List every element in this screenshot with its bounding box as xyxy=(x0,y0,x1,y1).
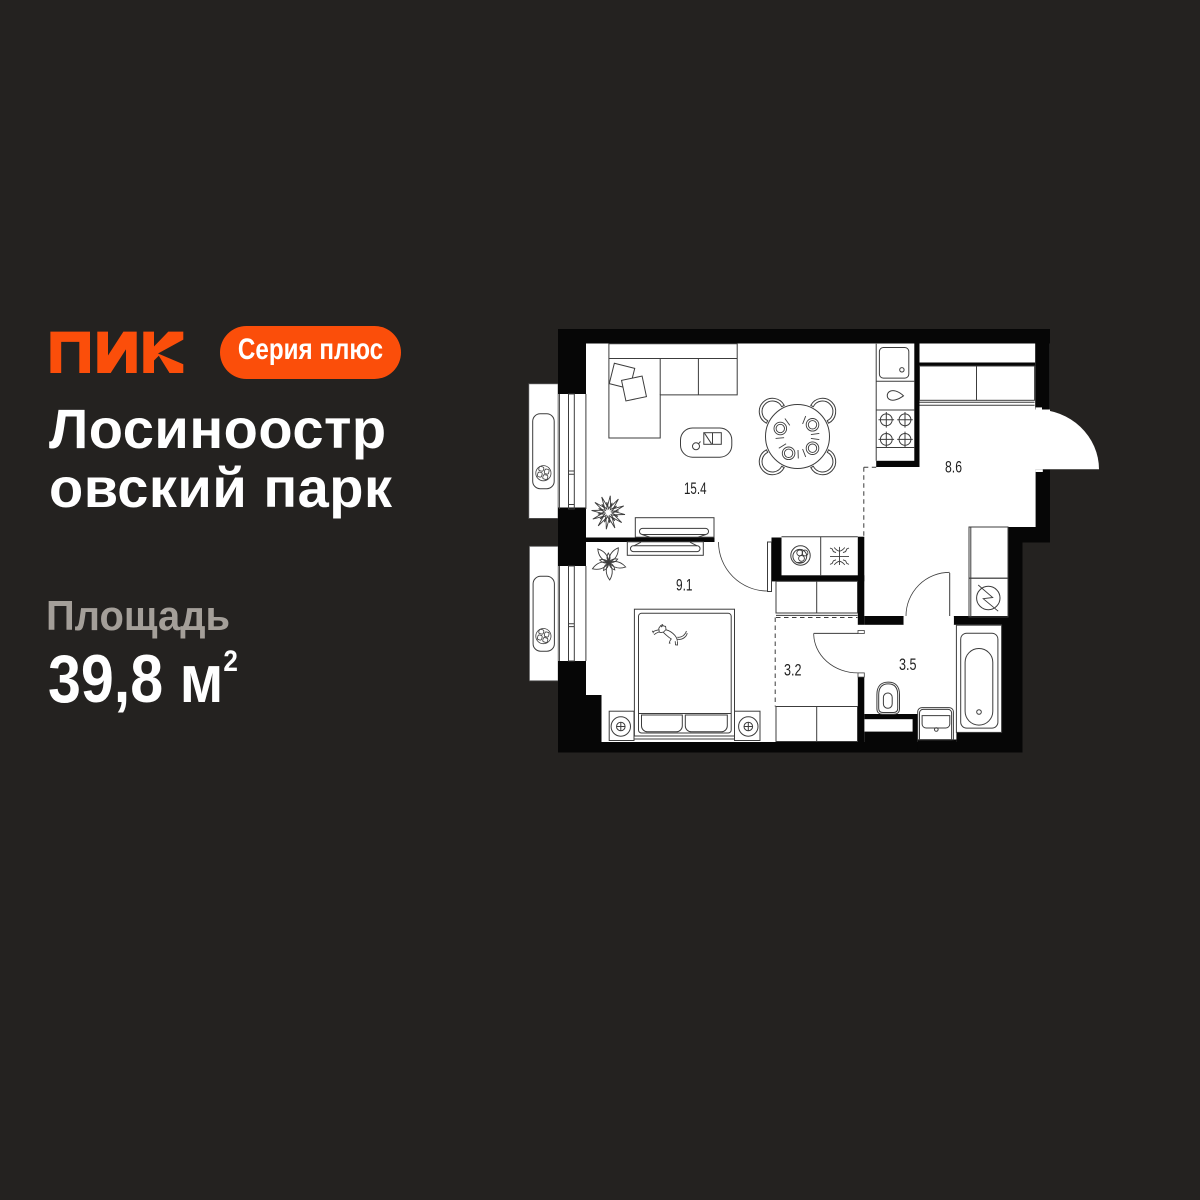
svg-text:8.6: 8.6 xyxy=(945,459,962,477)
svg-text:3.2: 3.2 xyxy=(784,662,802,680)
svg-text:15.4: 15.4 xyxy=(684,480,707,498)
svg-text:3.5: 3.5 xyxy=(899,656,917,674)
svg-text:9.1: 9.1 xyxy=(676,577,693,595)
